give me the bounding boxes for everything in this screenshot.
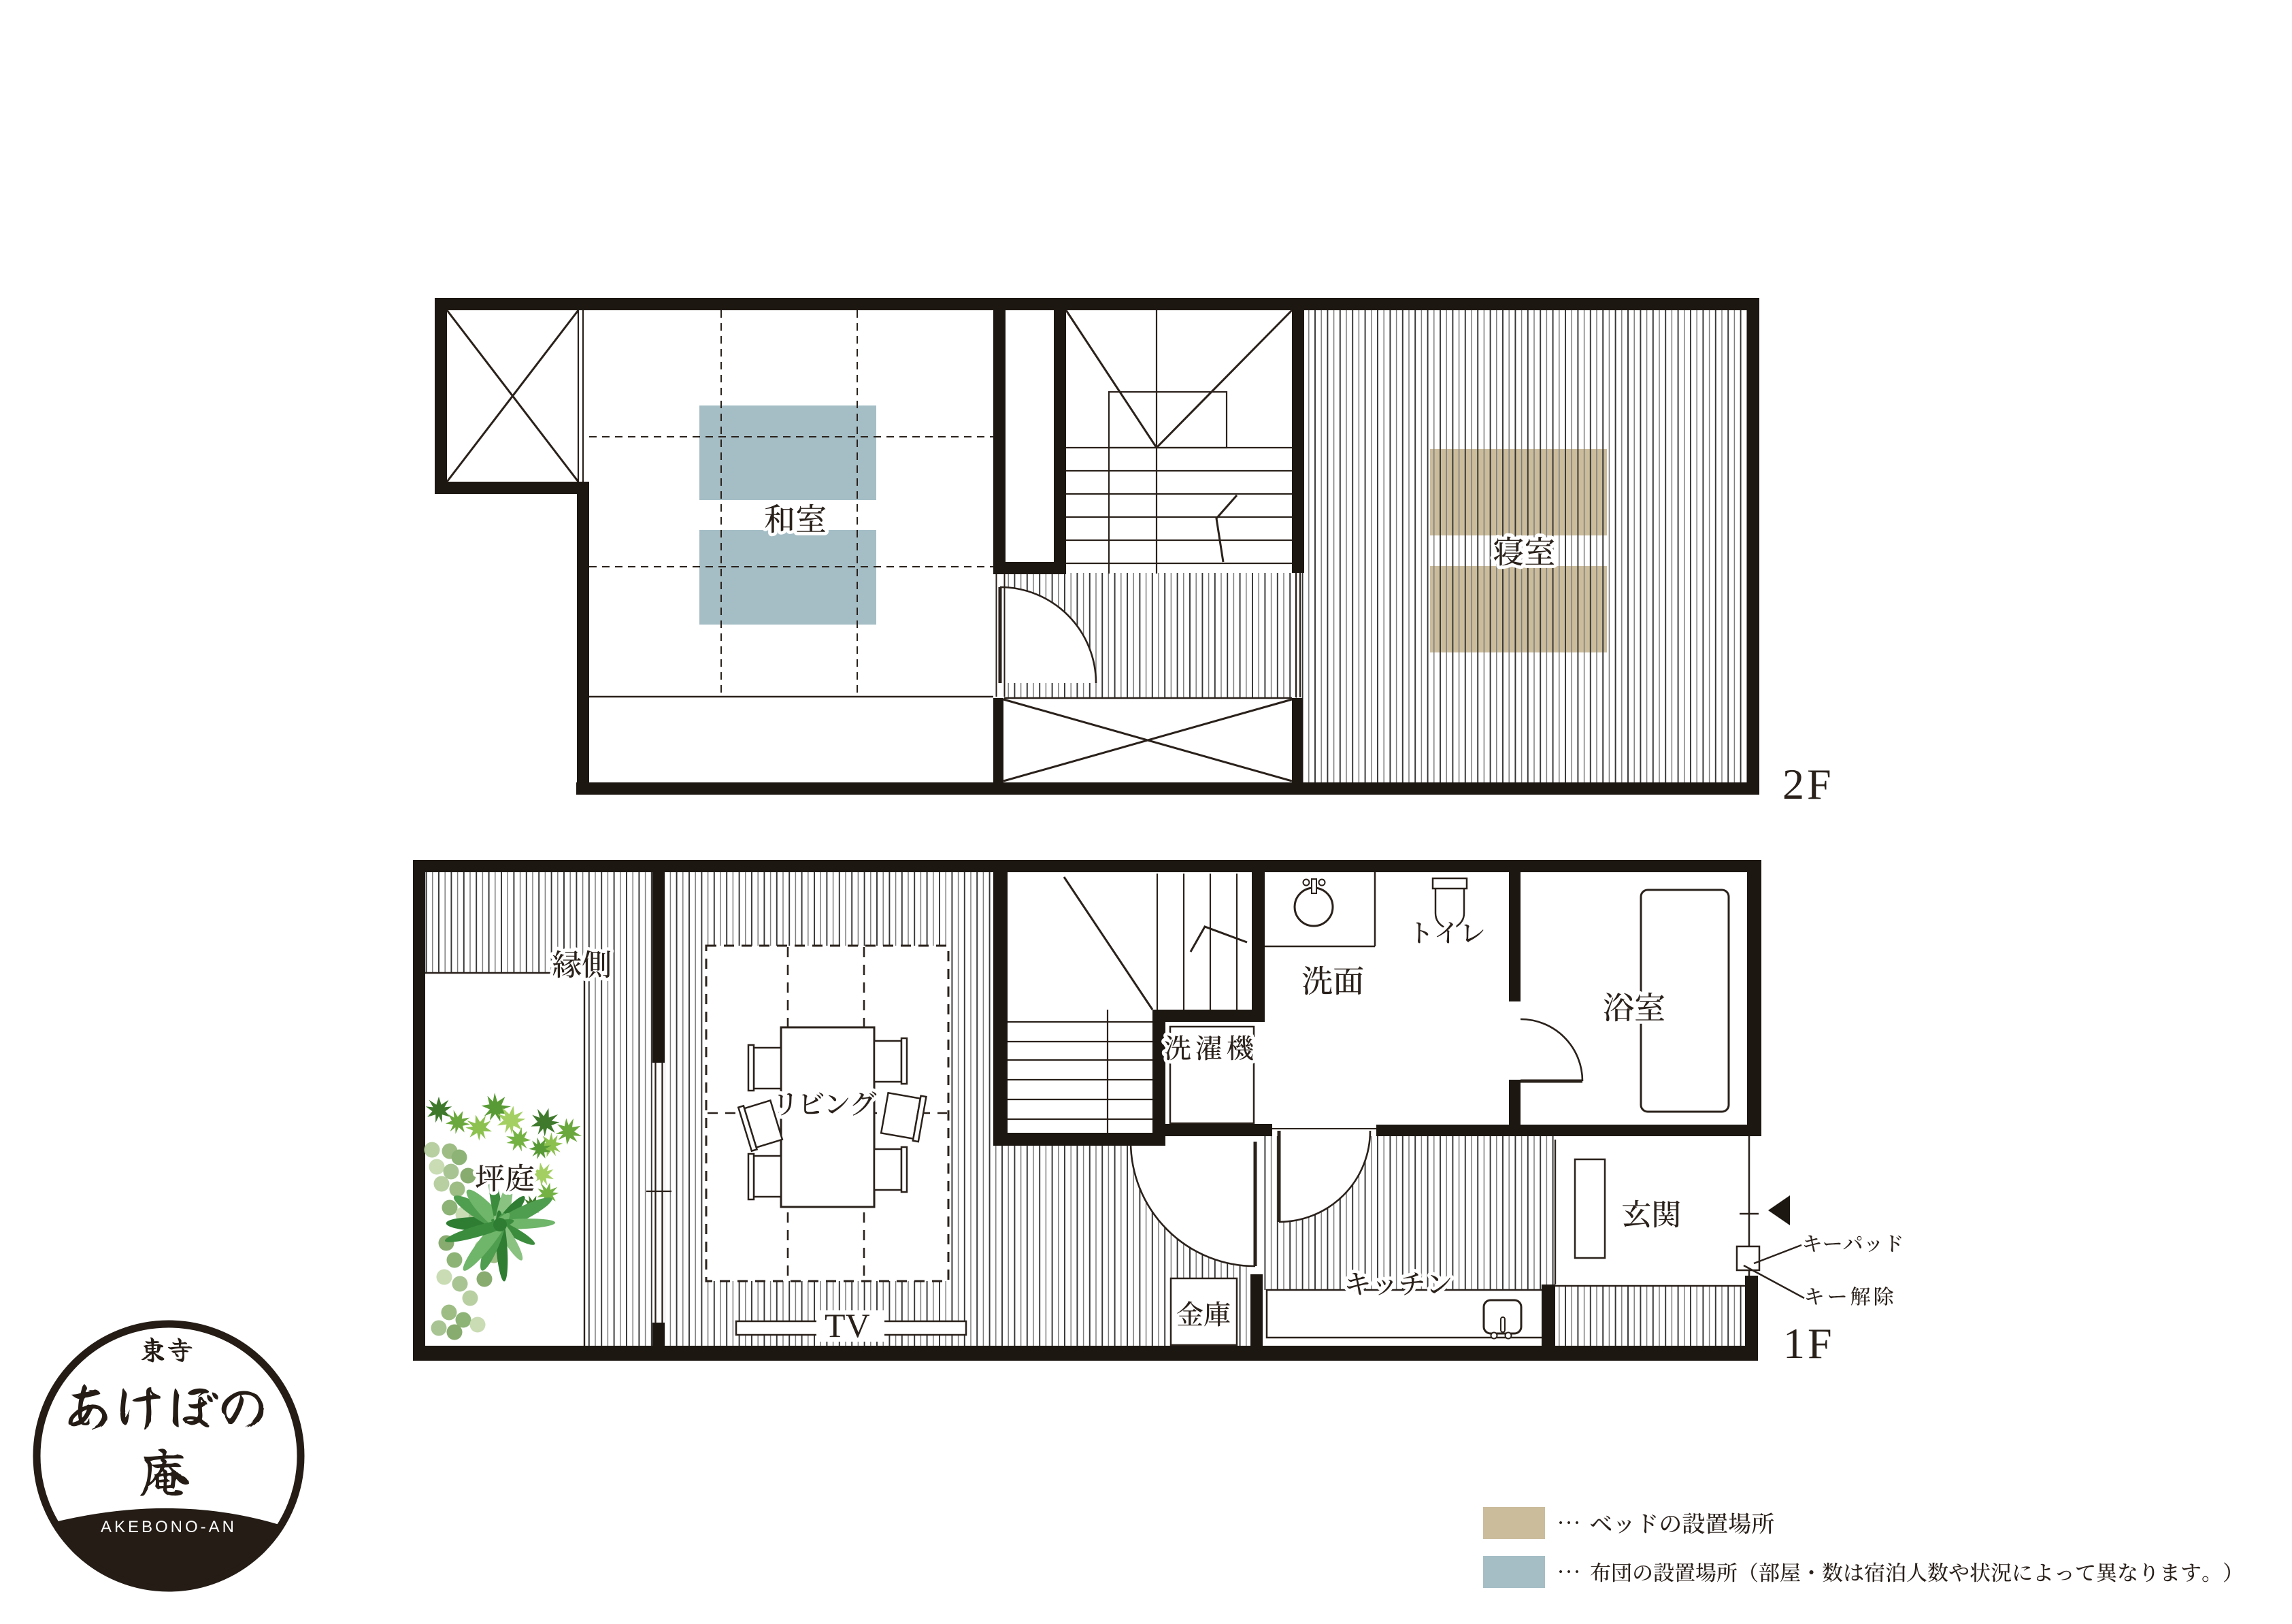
svg-text:AKEBONO-AN: AKEBONO-AN [101,1518,237,1536]
svg-text:TV: TV [825,1306,870,1344]
svg-text:1F: 1F [1783,1319,1835,1368]
svg-text:2F: 2F [1782,760,1834,808]
